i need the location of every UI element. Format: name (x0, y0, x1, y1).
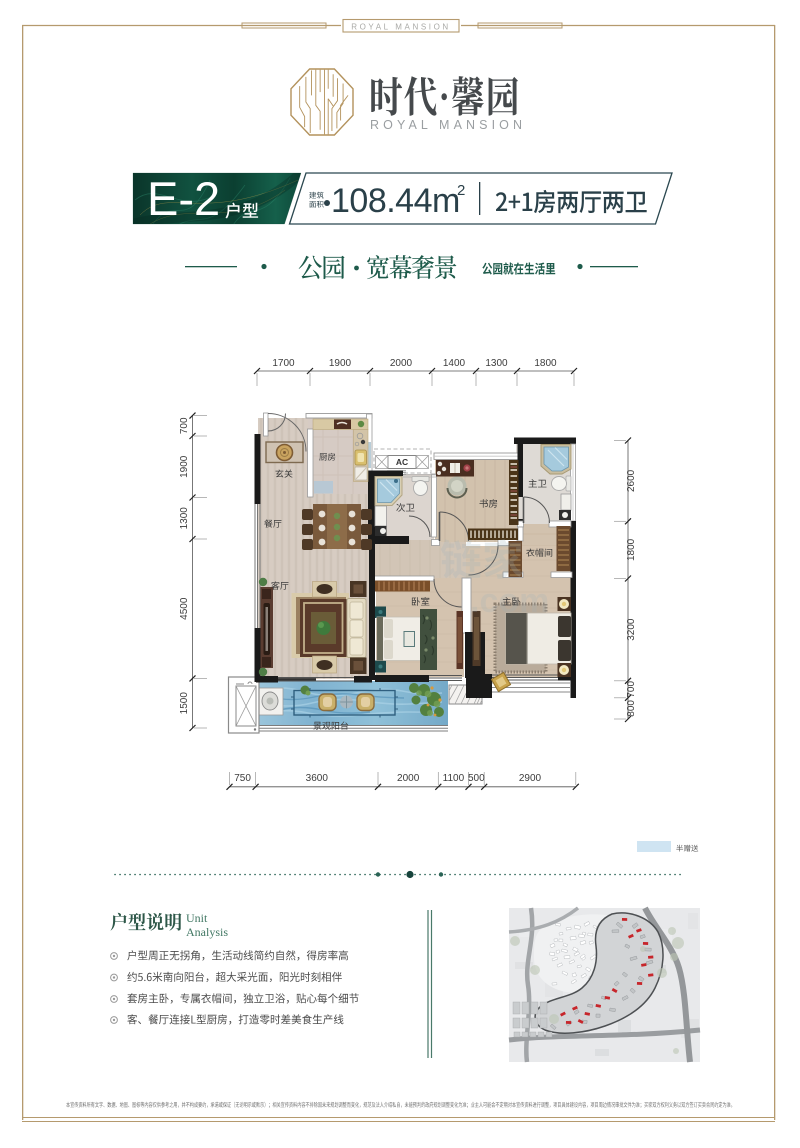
svg-text:ROYAL MANSION: ROYAL MANSION (351, 23, 451, 32)
svg-text:3600: 3600 (306, 773, 329, 784)
svg-text:1900: 1900 (329, 358, 352, 369)
svg-text:1900: 1900 (179, 455, 190, 478)
svg-text:Analysis: Analysis (186, 925, 228, 939)
svg-text:2000: 2000 (397, 773, 420, 784)
svg-text:1300: 1300 (179, 507, 190, 530)
svg-text:Unit: Unit (186, 911, 208, 925)
svg-text:ROYAL MANSION: ROYAL MANSION (370, 118, 526, 132)
svg-text:AC: AC (396, 457, 408, 467)
svg-text:1800: 1800 (534, 358, 557, 369)
svg-text:1800: 1800 (626, 538, 637, 561)
svg-text:E-2: E-2 (147, 172, 220, 225)
svg-text:800: 800 (626, 700, 637, 717)
svg-text:2900: 2900 (519, 773, 542, 784)
svg-text:4500: 4500 (179, 597, 190, 620)
svg-text:750: 750 (234, 773, 251, 784)
svg-text:2: 2 (457, 182, 465, 199)
svg-text:1700: 1700 (272, 358, 295, 369)
svg-text:2600: 2600 (626, 469, 637, 492)
svg-text:1500: 1500 (179, 692, 190, 715)
svg-text:700: 700 (626, 681, 637, 698)
svg-text:108.44m: 108.44m (331, 182, 460, 220)
svg-text:3200: 3200 (626, 618, 637, 641)
svg-text:1400: 1400 (443, 358, 466, 369)
svg-text:.com: .com (470, 582, 549, 620)
svg-text:1300: 1300 (485, 358, 508, 369)
svg-text:700: 700 (179, 417, 190, 434)
svg-text:1100: 1100 (443, 773, 465, 784)
svg-text:500: 500 (468, 773, 485, 784)
svg-text:2000: 2000 (390, 358, 413, 369)
